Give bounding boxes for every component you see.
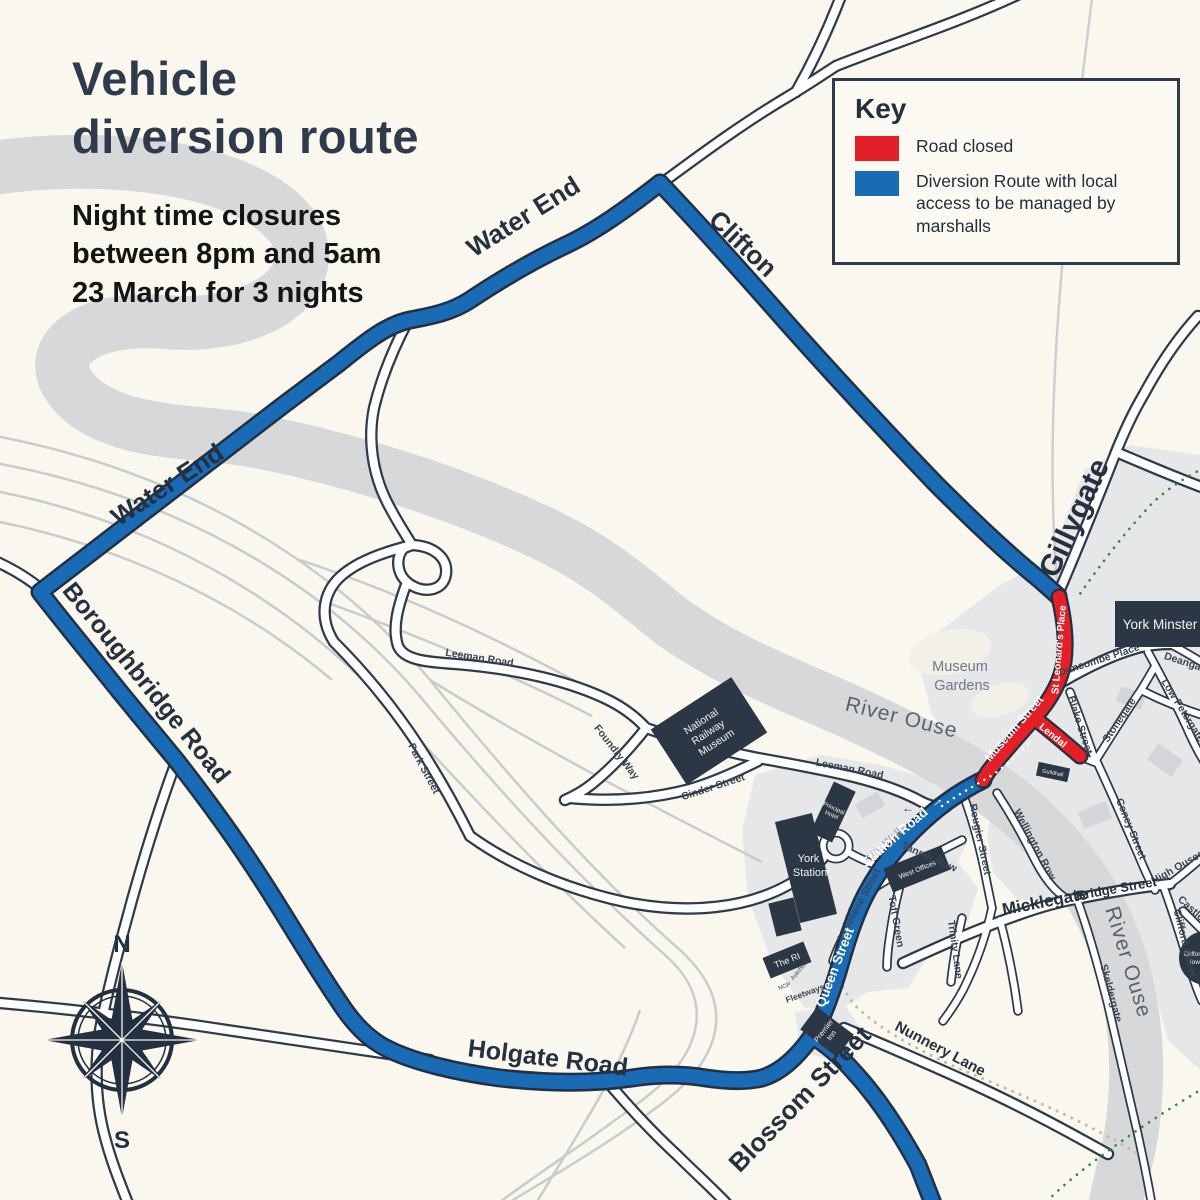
york-minster-label: York Minster [1123,617,1198,632]
diversion-route-swatch [855,171,899,196]
subtitle-line-3: 23 March for 3 nights [72,274,419,313]
one-way-arrow-icon: ← [902,801,914,815]
diversion-route-label: Diversion Route with local access to be … [916,170,1141,237]
subtitle: Night time closures between 8pm and 5am … [72,197,419,314]
key-item-road-closed: Road closed [855,135,1157,161]
key-item-diversion-route: Diversion Route with local access to be … [855,170,1157,237]
page-title-line-1: Vehicle [72,50,419,108]
subtitle-line-1: Night time closures [72,197,419,236]
compass-north-label: N [113,931,130,958]
key-title: Key [855,93,1157,125]
road-closed-label: Road closed [916,135,1141,157]
poi-york-minster: York Minster [1115,601,1200,647]
compass-south-label: S [114,1127,130,1154]
map-key: Key Road closed Diversion Route with loc… [832,78,1180,265]
subtitle-line-2: between 8pm and 5am [72,235,419,274]
title-block: Vehicle diversion route Night time closu… [72,50,419,313]
page-title-line-2: diversion route [72,108,419,166]
road-closed-swatch [855,136,899,161]
diversion-map: York Minster National Railway Museum Yor… [0,0,1200,1200]
